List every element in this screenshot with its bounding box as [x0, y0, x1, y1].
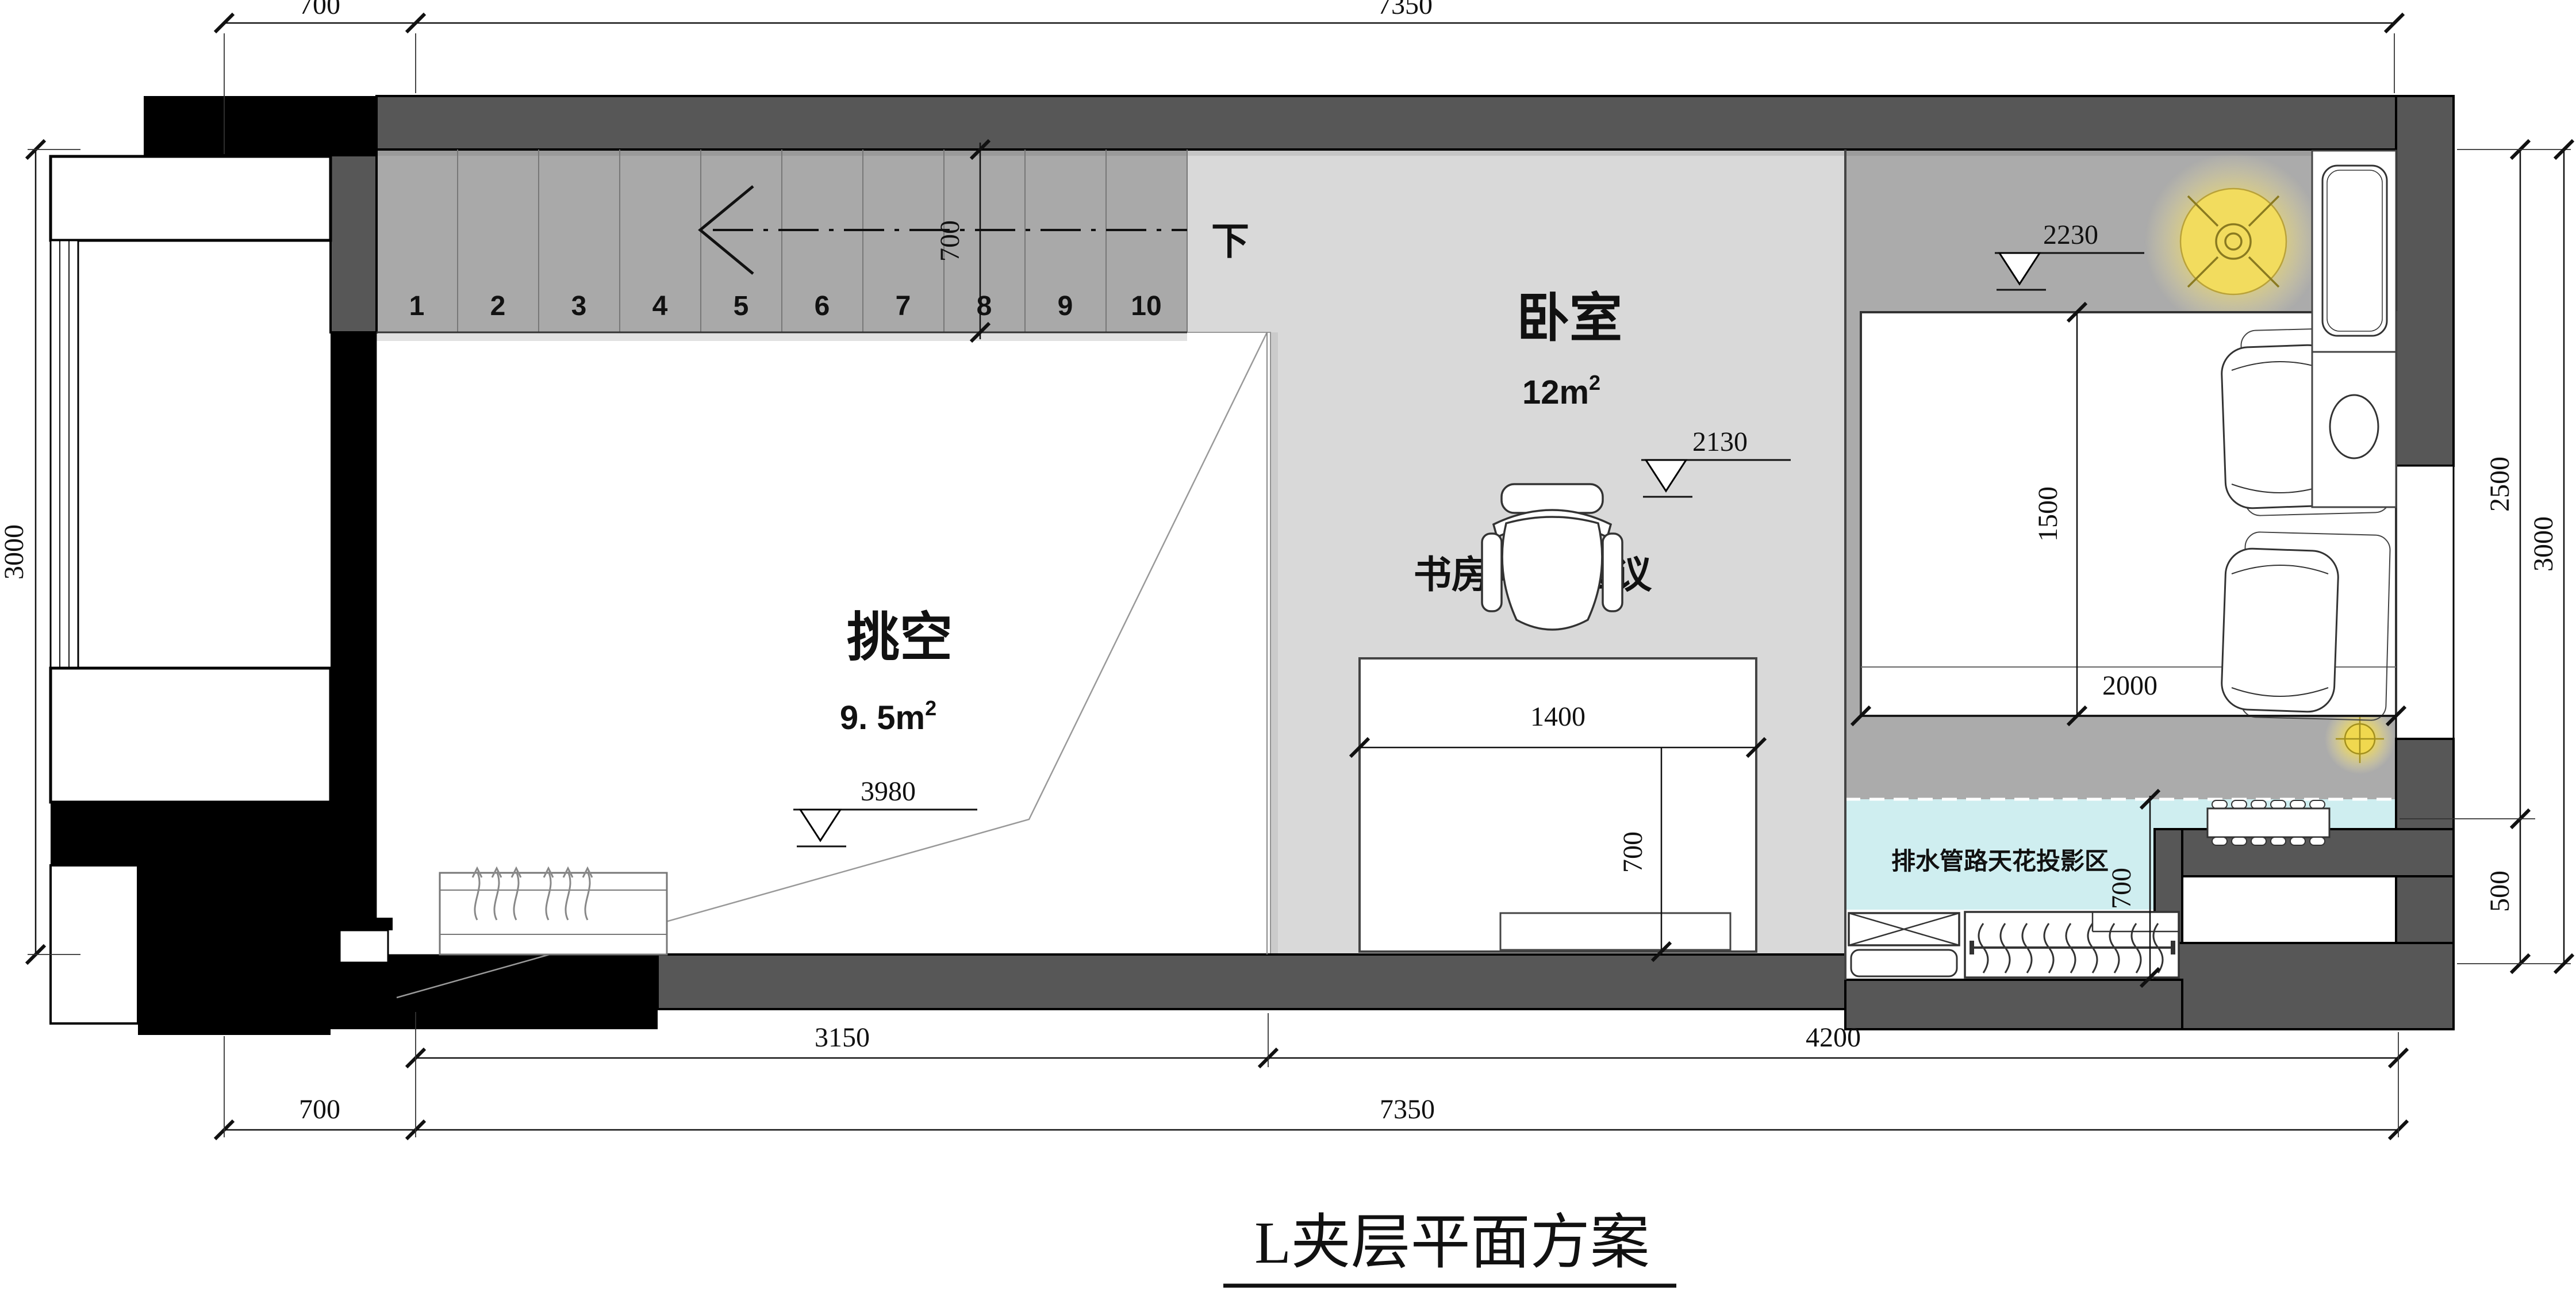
left-wall-stair: [331, 149, 377, 332]
desk-depth-label: 700: [1618, 831, 1648, 873]
dim-label: 7350: [1377, 0, 1433, 20]
dim-label: 7350: [1380, 1094, 1435, 1125]
ceiling-light-icon: [2144, 152, 2322, 331]
drawing-title: L夹层平面方案: [1223, 1210, 1676, 1286]
bay-wall-top: [144, 96, 377, 156]
stair-number: 4: [652, 291, 668, 321]
stair-number: 2: [490, 291, 506, 321]
bay-return-bottom: [51, 668, 331, 802]
bottom-outer-dimension-chain: 700 7350: [215, 1012, 2408, 1139]
drain-note: 排水管路天花投影区: [1891, 848, 2109, 875]
stair-number: 9: [1058, 291, 1073, 321]
closet-depth-label: 700: [2106, 868, 2137, 909]
bed-foot-niche: [2182, 874, 2396, 943]
bay-wall-bottom: [51, 802, 377, 865]
dim-label: 700: [299, 1094, 340, 1125]
bedfoot-bottom-wall: [2155, 943, 2454, 1029]
desk-width-label: 1400: [1530, 701, 1585, 732]
level-value: 2230: [2043, 220, 2098, 250]
stair-number: 10: [1131, 291, 1161, 321]
bed-width-label: 1500: [2033, 486, 2063, 542]
dim-label: 2500: [2485, 457, 2515, 512]
shaft-x-box: [1849, 913, 1959, 945]
dim-label: 4200: [1806, 1022, 1861, 1053]
stair-number: 5: [734, 291, 749, 321]
corner-wall-black: [138, 865, 331, 1035]
bay-return-top: [51, 156, 331, 240]
wardrobe-bottom-wall: [1845, 980, 2182, 1029]
stair-number: 6: [815, 291, 830, 321]
desk: 1400 700: [1350, 658, 1765, 961]
dim-label: 3000: [2528, 516, 2559, 572]
floor-plan-drawing: 1 2 3 4 5 6 7 8 9 10 700 下 挑空 9. 5m2 398…: [0, 0, 2576, 1292]
right-wall-upper: [2396, 96, 2454, 466]
void-floor: [377, 332, 1270, 954]
bedroom-area-label: 12m2: [1522, 371, 1600, 411]
toilet: [2330, 395, 2378, 458]
title-text: L夹层平面方案: [1254, 1210, 1650, 1276]
stair-number: 3: [571, 291, 587, 321]
bath-fixtures: [2312, 151, 2396, 507]
stair-down-label: 下: [1211, 220, 1249, 262]
right-outer-dimension-chain: 3000: [2528, 140, 2573, 973]
sink: [2322, 166, 2387, 336]
bedroom-label: 卧室: [1517, 289, 1622, 348]
closet: [1965, 912, 2179, 977]
kitchen-counter: [440, 868, 667, 954]
dim-label: 3000: [0, 524, 29, 580]
level-value: 2130: [1692, 427, 1748, 457]
level-value: 3980: [861, 776, 916, 807]
dim-label: 500: [2485, 871, 2515, 912]
floor-plan-page: 1 2 3 4 5 6 7 8 9 10 700 下 挑空 9. 5m2 398…: [0, 0, 2576, 1292]
void-area-label: 9. 5m2: [840, 696, 936, 737]
desk-monitor: [1500, 913, 1730, 950]
stair-width-dim-label: 700: [935, 220, 965, 262]
stair-number: 7: [896, 291, 911, 321]
stair-number: 1: [409, 291, 425, 321]
bay-window-frame: [51, 240, 78, 668]
stair-number: 8: [977, 291, 992, 321]
bottom-wall: [658, 954, 1845, 1009]
void-room-label: 挑空: [847, 608, 953, 667]
corner-niche: [51, 865, 138, 1023]
right-window: [2396, 466, 2454, 739]
top-wall: [377, 96, 2396, 149]
dim-label: 700: [299, 0, 340, 20]
basin-box: [1851, 950, 1957, 976]
wall-duct: [335, 918, 393, 975]
bed-length-label: 2000: [2102, 670, 2157, 701]
dim-label: 3150: [815, 1022, 870, 1053]
